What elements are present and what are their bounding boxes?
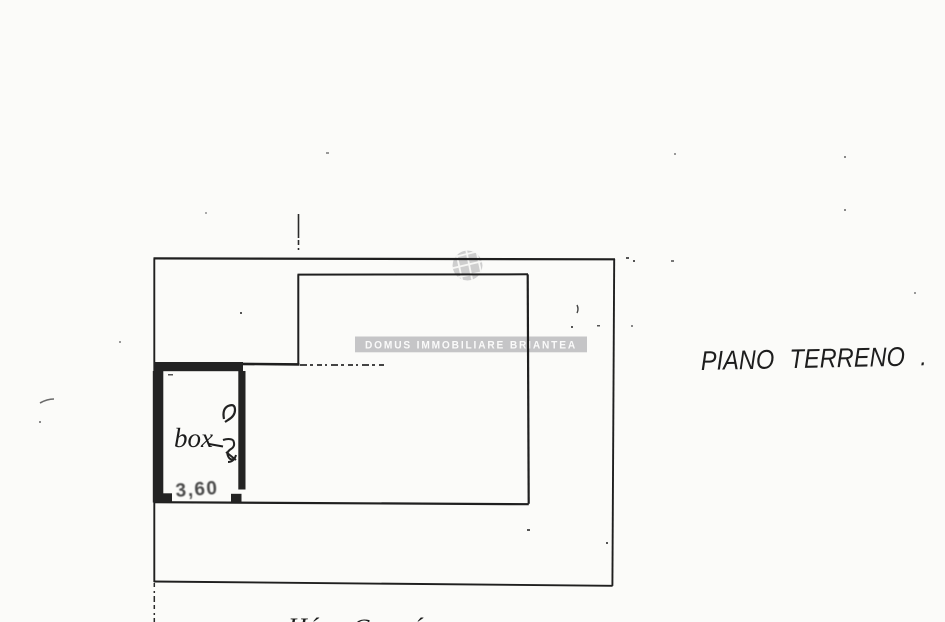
svg-text:PIANO TERRENO .: PIANO TERRENO . [700,341,927,376]
svg-text:Ca: Ca [352,614,382,622]
svg-text:box: box [174,423,213,453]
svg-text:DOMUS IMMOBILIARE BRIANTEA: DOMUS IMMOBILIARE BRIANTEA [365,340,577,352]
svg-text:3,60: 3,60 [175,478,219,502]
svg-text:Héc: Héc [287,613,330,622]
svg-text:né: né [398,613,424,622]
